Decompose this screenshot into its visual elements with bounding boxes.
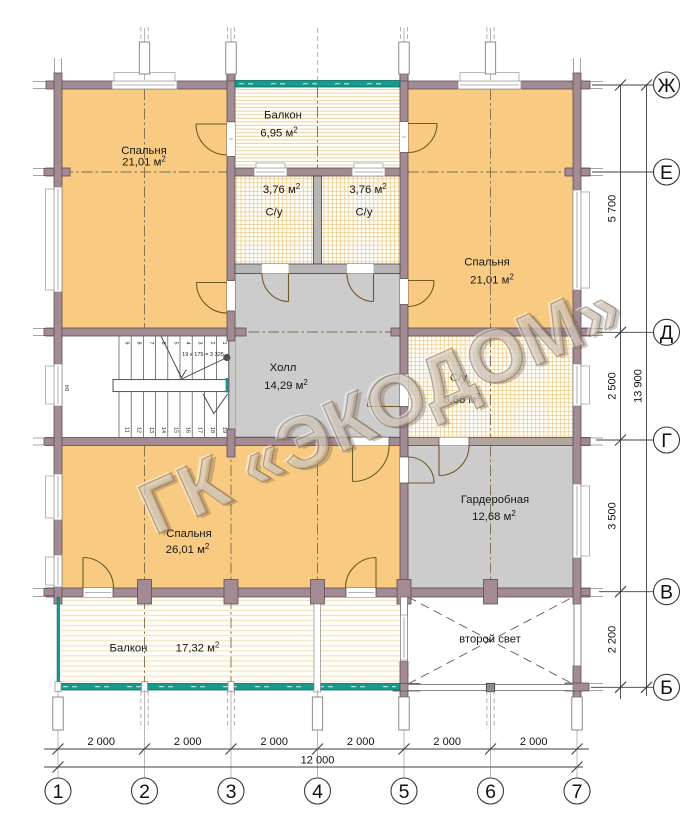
svg-text:2 000: 2 000 [347, 736, 375, 748]
svg-text:04: 04 [65, 385, 71, 391]
svg-text:2 000: 2 000 [433, 736, 461, 748]
svg-text:11: 11 [124, 427, 130, 433]
svg-text:14,29 м2: 14,29 м2 [264, 378, 308, 392]
svg-text:1: 1 [53, 781, 64, 803]
svg-text:Спальня: Спальня [121, 145, 166, 157]
svg-text:4: 4 [185, 342, 191, 345]
svg-text:13: 13 [148, 427, 154, 433]
svg-text:С/у: С/у [266, 207, 283, 219]
svg-text:С/у: С/у [356, 207, 373, 219]
svg-text:3,76 м2: 3,76 м2 [263, 182, 301, 196]
svg-text:7: 7 [148, 342, 154, 345]
svg-text:21,01 м2: 21,01 м2 [122, 155, 166, 169]
svg-text:4: 4 [312, 781, 323, 803]
svg-text:3,76 м2: 3,76 м2 [349, 182, 387, 196]
svg-text:2 000: 2 000 [520, 736, 548, 748]
svg-text:Гардеробная: Гардеробная [461, 494, 529, 506]
svg-text:9: 9 [124, 342, 130, 345]
svg-text:3 500: 3 500 [607, 502, 619, 530]
svg-text:В: В [660, 582, 673, 604]
svg-text:второй свет: второй свет [459, 634, 521, 646]
svg-text:21,01 м2: 21,01 м2 [470, 273, 514, 287]
svg-text:6: 6 [160, 342, 166, 345]
svg-text:Спальня: Спальня [464, 257, 509, 269]
svg-text:Ж: Ж [657, 75, 675, 97]
svg-text:2: 2 [139, 781, 150, 803]
svg-text:2 000: 2 000 [174, 736, 202, 748]
svg-text:2: 2 [209, 342, 215, 345]
svg-text:14: 14 [160, 427, 166, 433]
svg-text:5 700: 5 700 [607, 195, 619, 223]
svg-text:16: 16 [185, 427, 191, 433]
svg-text:7: 7 [572, 781, 583, 803]
svg-text:Балкон: Балкон [264, 110, 302, 122]
svg-text:1: 1 [221, 342, 227, 345]
svg-text:12 000: 12 000 [301, 755, 335, 767]
svg-text:12: 12 [136, 427, 142, 433]
svg-text:19 x 175 = 3 325: 19 x 175 = 3 325 [182, 352, 224, 358]
svg-text:5: 5 [172, 342, 178, 345]
svg-text:2 500: 2 500 [607, 372, 619, 400]
svg-text:13 900: 13 900 [633, 369, 645, 403]
svg-text:3: 3 [197, 342, 203, 345]
svg-text:15: 15 [172, 427, 178, 433]
svg-text:Д: Д [660, 322, 673, 344]
svg-text:Балкон: Балкон [110, 643, 148, 655]
svg-text:8: 8 [136, 342, 142, 345]
svg-text:2 000: 2 000 [87, 736, 115, 748]
svg-text:Г: Г [661, 430, 672, 452]
svg-text:6: 6 [485, 781, 496, 803]
svg-text:12,68 м2: 12,68 м2 [472, 509, 516, 523]
svg-text:18: 18 [209, 427, 215, 433]
svg-text:Е: Е [660, 162, 673, 184]
svg-text:2 200: 2 200 [607, 626, 619, 654]
svg-text:5: 5 [399, 781, 410, 803]
svg-text:Б: Б [660, 677, 673, 699]
svg-text:17,32 м2: 17,32 м2 [176, 641, 220, 655]
svg-text:17: 17 [197, 427, 203, 433]
svg-text:3: 3 [226, 781, 237, 803]
svg-text:6,95 м2: 6,95 м2 [260, 126, 298, 140]
svg-text:2 000: 2 000 [260, 736, 288, 748]
svg-text:Холл: Холл [270, 362, 297, 374]
